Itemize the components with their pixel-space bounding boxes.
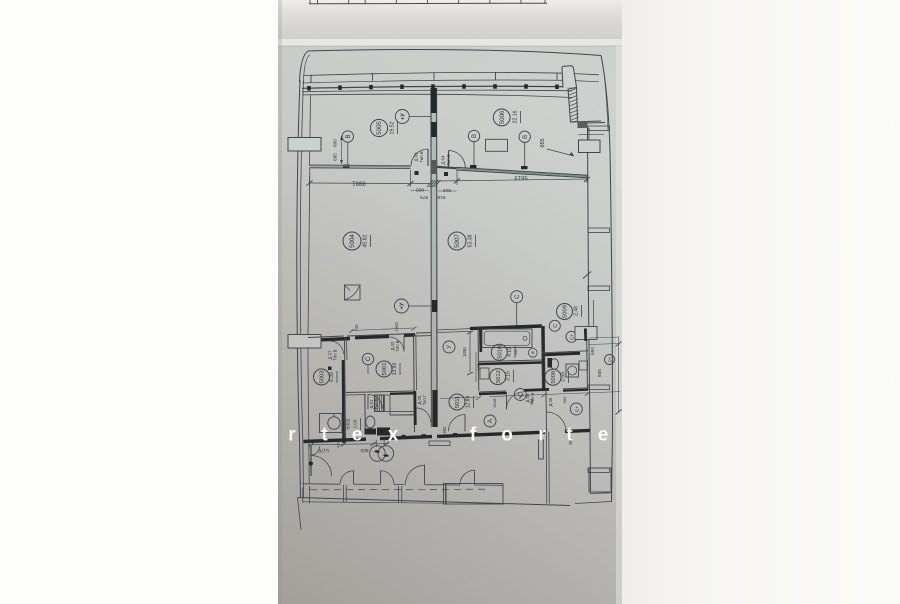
svg-text:В: В xyxy=(472,134,478,138)
svg-text:815: 815 xyxy=(437,194,445,200)
svg-text:r: r xyxy=(538,425,546,446)
svg-text:t: t xyxy=(321,425,328,446)
svg-text:В: В xyxy=(523,135,529,139)
svg-text:e: e xyxy=(352,425,363,446)
svg-text:5003: 5003 xyxy=(320,371,326,384)
svg-text:800: 800 xyxy=(360,447,369,453)
svg-text:6.39: 6.39 xyxy=(329,372,335,382)
svg-text:Тип В: Тип В xyxy=(333,349,338,360)
svg-text:5002: 5002 xyxy=(346,418,352,429)
svg-text:С+: С+ xyxy=(570,333,575,339)
svg-text:t: t xyxy=(566,425,573,446)
svg-text:r: r xyxy=(288,425,296,446)
svg-text:5012: 5012 xyxy=(496,370,502,383)
svg-text:В: В xyxy=(346,134,352,138)
svg-text:8108: 8108 xyxy=(492,398,497,408)
svg-text:22.16: 22.16 xyxy=(513,110,519,123)
svg-text:С+: С+ xyxy=(575,406,581,412)
svg-text:875: 875 xyxy=(420,194,428,200)
svg-text:2.48: 2.48 xyxy=(574,306,580,316)
svg-text:53.38: 53.38 xyxy=(468,234,474,247)
svg-text:Тип В: Тип В xyxy=(395,340,400,351)
svg-text:600: 600 xyxy=(597,369,602,377)
svg-text:960: 960 xyxy=(562,396,567,403)
svg-text:x: x xyxy=(388,425,399,446)
svg-text:13.90: 13.90 xyxy=(392,363,398,376)
svg-text:Тип Г: Тип Г xyxy=(422,394,427,405)
svg-text:У: У xyxy=(447,345,453,349)
svg-text:908: 908 xyxy=(529,398,534,405)
svg-text:С: С xyxy=(366,356,372,361)
svg-text:1945: 1945 xyxy=(394,322,399,332)
svg-text:685: 685 xyxy=(333,153,338,161)
svg-text:5001: 5001 xyxy=(382,363,388,376)
svg-text:Тип В: Тип В xyxy=(446,154,451,166)
svg-text:445: 445 xyxy=(513,348,518,355)
svg-text:С: С xyxy=(515,294,521,299)
svg-text:+У: +У xyxy=(401,113,407,120)
svg-text:8891: 8891 xyxy=(352,180,366,186)
svg-text:Д 09: Д 09 xyxy=(548,397,553,406)
svg-text:865: 865 xyxy=(416,187,424,193)
svg-text:5009: 5009 xyxy=(563,305,569,318)
svg-text:5004: 5004 xyxy=(349,234,356,248)
svg-text:815: 815 xyxy=(443,187,451,193)
svg-text:665: 665 xyxy=(540,138,546,147)
svg-text:900: 900 xyxy=(442,426,447,434)
svg-text:f: f xyxy=(470,425,477,446)
svg-text:19.52: 19.52 xyxy=(390,121,396,134)
svg-text:3.16: 3.16 xyxy=(506,371,512,381)
svg-text:Д 04: Д 04 xyxy=(441,155,446,165)
svg-text:1050: 1050 xyxy=(462,347,467,357)
svg-text:С+: С+ xyxy=(608,356,613,362)
svg-text:Тип В: Тип В xyxy=(419,151,424,163)
svg-text:А: А xyxy=(488,419,494,423)
svg-text:5008: 5008 xyxy=(551,371,557,384)
svg-text:С: С xyxy=(553,324,559,328)
svg-text:e: e xyxy=(598,425,609,446)
svg-text:Д 03: Д 03 xyxy=(414,152,419,162)
svg-text:600: 600 xyxy=(333,139,338,147)
svg-text:45.82: 45.82 xyxy=(363,234,369,247)
svg-text:5005: 5005 xyxy=(376,121,383,135)
svg-text:5010: 5010 xyxy=(497,346,503,359)
svg-text:650: 650 xyxy=(590,347,595,355)
svg-text:5006: 5006 xyxy=(499,110,506,124)
svg-text:5619: 5619 xyxy=(514,174,528,180)
svg-text:o: o xyxy=(501,425,513,446)
svg-text:+У: +У xyxy=(400,302,406,309)
svg-text:5007: 5007 xyxy=(454,234,461,248)
